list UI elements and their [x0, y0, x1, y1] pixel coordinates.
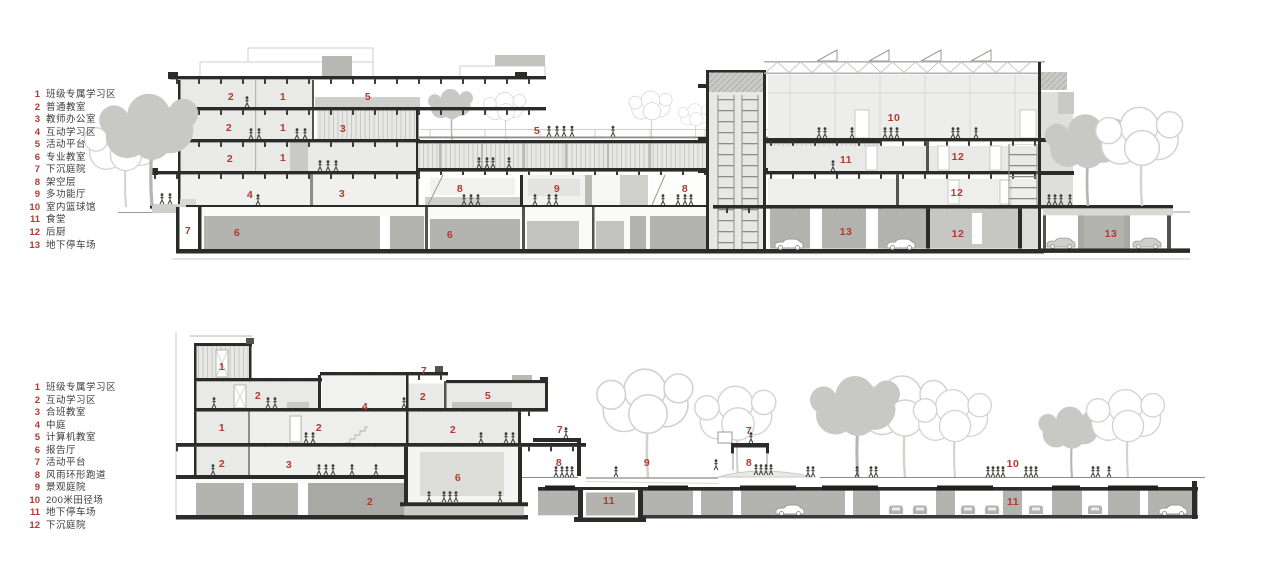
legend-item: 3合班教室 [24, 404, 174, 417]
room-number-label: 7 [421, 366, 427, 377]
car-icon [985, 506, 999, 515]
legend-number: 5 [24, 432, 40, 443]
room-number-label: 3 [340, 124, 346, 135]
room-number-label: 11 [840, 155, 852, 166]
legend-number: 12 [24, 227, 40, 238]
tree-icon [629, 91, 672, 140]
room-number-label: 6 [455, 473, 461, 484]
room-number-label: 1 [219, 362, 225, 373]
room-number-label: 12 [952, 152, 965, 163]
legend-item: 4互动学习区 [24, 124, 174, 137]
room-number-label: 12 [951, 188, 964, 199]
tree-icon [484, 92, 526, 140]
room-number-label: 6 [447, 230, 453, 241]
room-number-label: 9 [644, 458, 650, 469]
room-number-label: 4 [362, 402, 368, 413]
legend-number: 10 [24, 202, 40, 213]
room-number-label: 9 [554, 184, 560, 195]
legend-label: 地下停车场 [46, 237, 96, 251]
room-number-label: 5 [534, 126, 540, 137]
bottom-left-building [176, 336, 586, 520]
legend-number: 2 [24, 395, 40, 406]
room-number-label: 2 [450, 425, 456, 436]
room-number-label: 1 [219, 423, 225, 434]
room-number-label: 2 [255, 391, 261, 402]
legend-item: 6报告厅 [24, 442, 174, 455]
room-number-label: 13 [1105, 229, 1118, 240]
tree-icon [695, 386, 776, 478]
legend-item: 13地下停车场 [24, 237, 174, 250]
legend-item: 1班级专属学习区 [24, 379, 174, 392]
top-section-legend: 1班级专属学习区2普通教室3教师办公室4互动学习区5活动平台6专业教室7下沉庭院… [24, 86, 174, 249]
bottom-section-legend: 1班级专属学习区2互动学习区3合班教室4中庭5计算机教室6报告厅7活动平台8风雨… [24, 379, 174, 530]
legend-label: 下沉庭院 [46, 517, 86, 531]
room-number-label: 11 [603, 496, 615, 507]
tree-icon [913, 390, 991, 478]
legend-number: 9 [24, 189, 40, 200]
room-number-label: 3 [339, 189, 345, 200]
room-number-label: 1 [280, 123, 286, 134]
legend-number: 8 [24, 177, 40, 188]
courtyard-trees [597, 369, 1165, 478]
room-number-label: 4 [247, 190, 253, 201]
legend-item: 3教师办公室 [24, 111, 174, 124]
legend-item: 10室内篮球馆 [24, 199, 174, 212]
room-number-label: 2 [227, 154, 233, 165]
car-icon [1088, 506, 1102, 515]
legend-item: 7活动平台 [24, 454, 174, 467]
background-trees [428, 89, 711, 141]
room-number-label: 12 [952, 229, 965, 240]
room-number-label: 8 [457, 184, 463, 195]
legend-item: 2普通教室 [24, 99, 174, 112]
room-number-label: 7 [557, 425, 563, 436]
legend-number: 6 [24, 445, 40, 456]
room-number-label: 7 [746, 426, 752, 437]
room-number-label: 2 [367, 497, 373, 508]
legend-item: 6专业教室 [24, 149, 174, 162]
tree-icon [1096, 107, 1183, 206]
room-number-label: 8 [682, 184, 688, 195]
room-number-label: 3 [286, 460, 292, 471]
legend-item: 12后厨 [24, 224, 174, 237]
legend-item: 11地下停车场 [24, 504, 174, 517]
legend-item: 9景观庭院 [24, 479, 174, 492]
legend-item: 8架空层 [24, 174, 174, 187]
legend-number: 4 [24, 127, 40, 138]
legend-number: 11 [24, 507, 40, 518]
legend-item: 4中庭 [24, 417, 174, 430]
legend-number: 8 [24, 470, 40, 481]
legend-number: 5 [24, 139, 40, 150]
room-number-label: 13 [840, 227, 853, 238]
top-section-drawing [84, 48, 1190, 259]
legend-number: 11 [24, 214, 40, 225]
room-number-label: 2 [228, 92, 234, 103]
core-tower [698, 70, 766, 249]
room-number-label: 2 [316, 423, 322, 434]
room-number-label: 8 [556, 458, 562, 469]
room-number-label: 5 [365, 92, 371, 103]
legend-number: 1 [24, 382, 40, 393]
room-number-label: 7 [185, 226, 191, 237]
car-icon [1029, 506, 1043, 515]
sections-linework [0, 0, 1280, 587]
room-number-label: 10 [888, 113, 901, 124]
car-icon [913, 506, 927, 515]
legend-number: 1 [24, 89, 40, 100]
room-number-label: 1 [280, 92, 286, 103]
stilt-level [425, 175, 706, 205]
legend-item: 11食堂 [24, 211, 174, 224]
room-number-label: 10 [1007, 459, 1020, 470]
legend-item: 5活动平台 [24, 136, 174, 149]
legend-item: 8风雨环形跑道 [24, 467, 174, 480]
room-number-label: 1 [280, 153, 286, 164]
room-number-label: 5 [485, 391, 491, 402]
room-number-label: 2 [420, 392, 426, 403]
bottom-section-drawing [176, 332, 1205, 522]
legend-item: 2互动学习区 [24, 392, 174, 405]
auditorium [400, 447, 528, 516]
legend-item: 10200米田径场 [24, 492, 174, 505]
legend-item: 1班级专属学习区 [24, 86, 174, 99]
architectural-sections-sheet: 1班级专属学习区2普通教室3教师办公室4互动学习区5活动平台6专业教室7下沉庭院… [0, 0, 1280, 587]
legend-number: 3 [24, 407, 40, 418]
room-number-label: 2 [219, 459, 225, 470]
legend-number: 6 [24, 152, 40, 163]
room-number-label: 2 [226, 123, 232, 134]
legend-number: 13 [24, 240, 40, 251]
tree-icon [1086, 390, 1164, 478]
legend-item: 5计算机教室 [24, 429, 174, 442]
room-number-label: 6 [234, 228, 240, 239]
legend-number: 10 [24, 495, 40, 506]
car-icon [961, 506, 975, 515]
bottom-parking [538, 481, 1198, 522]
legend-item: 7下沉庭院 [24, 161, 174, 174]
legend-number: 2 [24, 102, 40, 113]
room-number-label: 8 [746, 458, 752, 469]
legend-number: 9 [24, 482, 40, 493]
legend-number: 4 [24, 420, 40, 431]
legend-number: 7 [24, 457, 40, 468]
legend-number: 7 [24, 164, 40, 175]
legend-item: 12下沉庭院 [24, 517, 174, 530]
legend-number: 12 [24, 520, 40, 531]
car-icon [889, 506, 903, 515]
legend-number: 3 [24, 114, 40, 125]
room-number-label: 11 [1007, 497, 1019, 508]
sawtooth-skylights [817, 50, 991, 61]
legend-item: 9多功能厅 [24, 186, 174, 199]
